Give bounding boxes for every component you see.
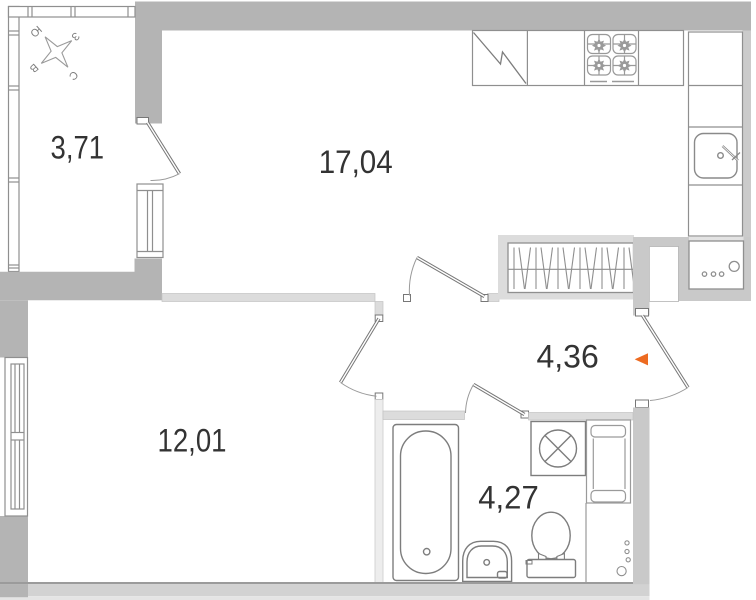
- svg-text:Ю: Ю: [28, 23, 44, 39]
- svg-text:В: В: [27, 61, 40, 75]
- svg-text:С: С: [66, 68, 80, 82]
- svg-text:3,71: 3,71: [51, 129, 105, 165]
- svg-text:17,04: 17,04: [319, 144, 393, 180]
- svg-text:12,01: 12,01: [158, 422, 227, 458]
- svg-text:4,27: 4,27: [478, 480, 539, 516]
- svg-text:4,36: 4,36: [536, 338, 598, 374]
